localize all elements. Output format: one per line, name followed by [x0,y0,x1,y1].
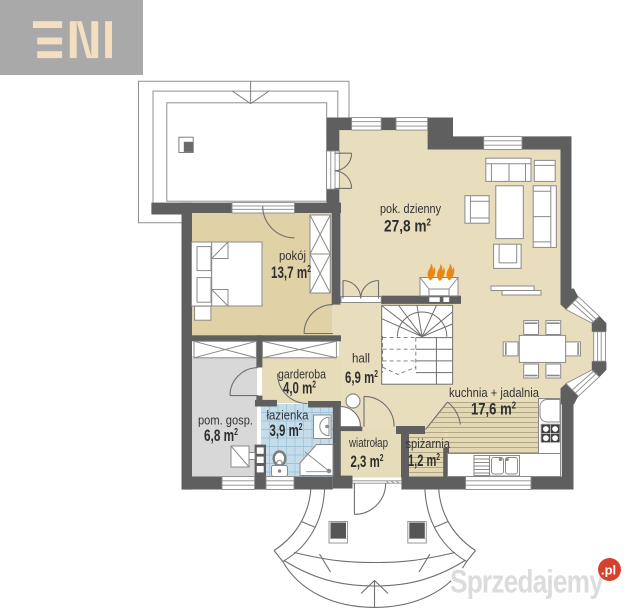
svg-text:1,2 m2: 1,2 m2 [408,451,440,470]
svg-text:spiżarnia: spiżarnia [406,437,451,451]
svg-text:4,0 m2: 4,0 m2 [283,379,316,398]
svg-text:hall: hall [352,352,370,366]
svg-text:.pl: .pl [601,563,616,578]
svg-text:kuchnia + jadalnia: kuchnia + jadalnia [449,386,539,400]
svg-text:2,3 m2: 2,3 m2 [351,452,384,471]
svg-text:13,7 m2: 13,7 m2 [271,263,311,282]
svg-text:27,8 m2: 27,8 m2 [384,217,431,236]
svg-text:pok. dzienny: pok. dzienny [380,202,442,216]
svg-text:6,9 m2: 6,9 m2 [345,368,378,387]
svg-text:Sprzedajemy: Sprzedajemy [450,564,604,600]
svg-text:3,9 m2: 3,9 m2 [270,421,303,440]
svg-text:wiatrołap: wiatrołap [348,436,388,450]
svg-text:pokój: pokój [279,249,306,263]
svg-text:6,8 m2: 6,8 m2 [204,426,238,445]
svg-text:17,6 m2: 17,6 m2 [471,400,516,419]
